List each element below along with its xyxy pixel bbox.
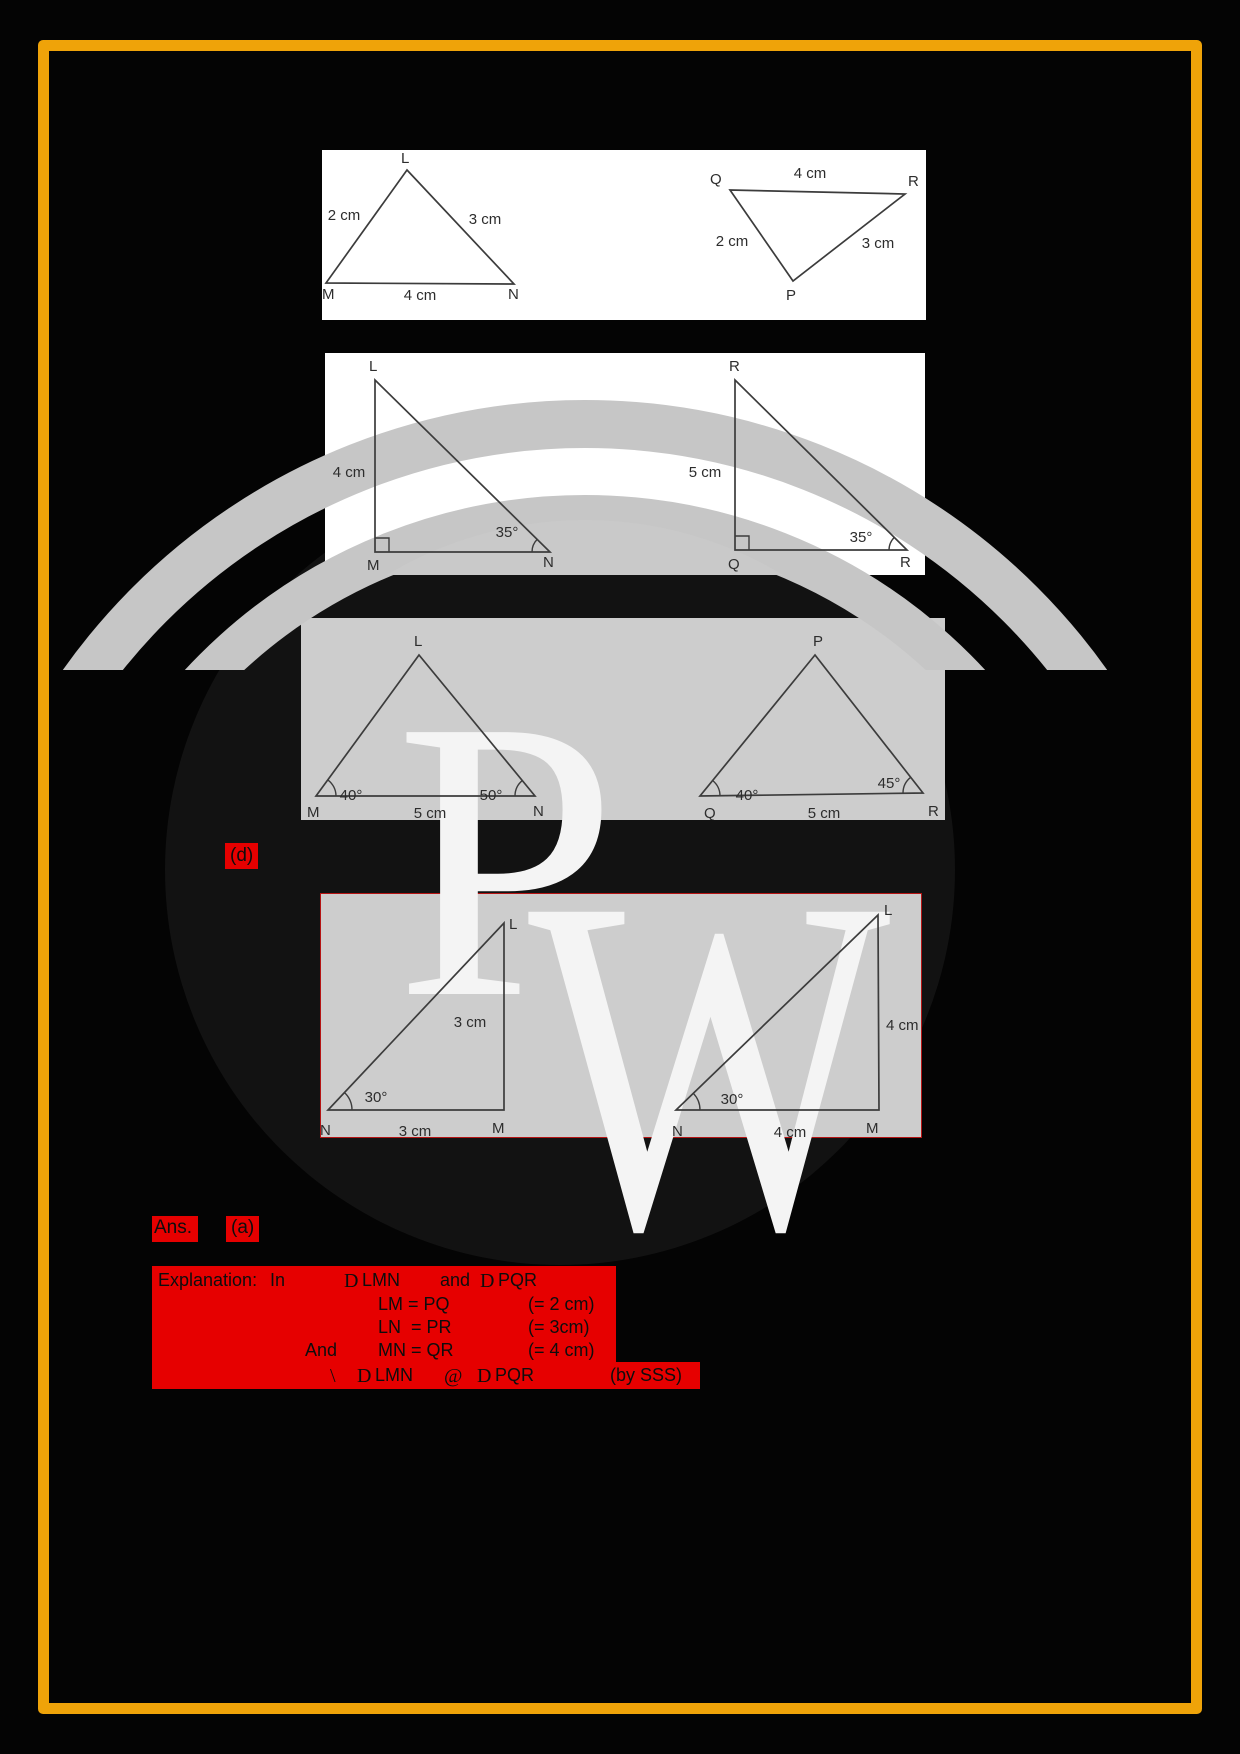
side-label-mn: 4 cm: [404, 287, 437, 304]
side-label-ln: 3 cm: [469, 211, 502, 228]
watermark-disc-cap: [325, 520, 925, 575]
and-word: And: [305, 1340, 337, 1361]
side-label-lm2: 4 cm: [886, 1017, 919, 1034]
vertex-label-n: N: [508, 286, 519, 303]
value-3cm: (= 3cm): [528, 1317, 590, 1338]
delta-symbol: D: [344, 1270, 358, 1293]
triangle-pqr-name: PQR: [498, 1270, 537, 1291]
vertex-label-r-top: R: [729, 358, 740, 375]
angle-label-m: 40°: [340, 787, 363, 804]
vertex-label-m: M: [367, 557, 380, 574]
by-sss-note: (by SSS): [610, 1365, 682, 1386]
equation-ln-pr: LN = PR: [378, 1317, 452, 1338]
vertex-label-r: R: [928, 803, 939, 820]
side-label-nm2: 4 cm: [774, 1124, 807, 1138]
answer-value: (a): [226, 1216, 259, 1242]
angle-label-n1: 30°: [365, 1089, 388, 1106]
vertex-label-m: M: [307, 804, 320, 820]
explanation-block: Explanation: In D LMN and D PQR LM = PQ …: [152, 1266, 616, 1362]
side-label-rq: 5 cm: [689, 464, 722, 481]
value-2cm: (= 2 cm): [528, 1294, 595, 1315]
vertex-label-l: L: [414, 633, 422, 650]
vertex-label-m2: M: [866, 1120, 879, 1137]
angle-arc-n2: [693, 1093, 700, 1110]
triangle-lmn-asa: [316, 655, 535, 796]
vertex-label-n: N: [543, 554, 554, 571]
side-label-lm: 2 cm: [328, 207, 361, 224]
watermark-circle: [165, 475, 955, 1265]
side-label-lm1: 3 cm: [454, 1014, 487, 1031]
vertex-label-r: R: [908, 173, 919, 190]
figure-asa-drawing: L 40° 50° M 5 cm N P 40° 45° Q 5 cm R: [301, 618, 945, 820]
vertex-label-r: R: [900, 554, 911, 571]
angle-label-q: 40°: [736, 787, 759, 804]
triangle-lmn-name: LMN: [362, 1270, 400, 1291]
angle-label-n2: 30°: [721, 1091, 744, 1108]
vertex-label-p: P: [813, 633, 823, 650]
vertex-label-m1: M: [492, 1120, 505, 1137]
angle-arc-m: [328, 780, 336, 796]
figure-option-d-drawing: L 3 cm 30° N 3 cm M L 4 cm 30° N 4 cm M: [320, 893, 922, 1138]
angle-arc-q: [713, 781, 720, 797]
answer-label: Ans.: [152, 1216, 198, 1242]
vertex-label-l: L: [401, 150, 409, 167]
equation-lm-pq: LM = PQ: [378, 1294, 450, 1315]
explanation-line-4: And MN = QR (= 4 cm): [152, 1338, 616, 1362]
triangle-lmn-right: [375, 380, 550, 552]
and-word: and: [440, 1270, 470, 1291]
angle-arc-n1: [344, 1093, 352, 1111]
right-angle-mark-m: [375, 538, 389, 552]
delta-symbol: D: [480, 1270, 494, 1293]
option-d-label: (d): [225, 843, 258, 869]
in-word: In: [270, 1270, 285, 1291]
vertex-label-p: P: [786, 287, 796, 304]
triangle-rqr-right: [735, 380, 907, 550]
side-label-qp: 2 cm: [716, 233, 749, 250]
equation-mn-qr: MN = QR: [378, 1340, 454, 1361]
side-label-nm1: 3 cm: [399, 1123, 432, 1138]
vertex-label-l1: L: [509, 916, 517, 933]
angle-label-r: 45°: [878, 775, 901, 792]
angle-label-r: 35°: [850, 529, 873, 546]
figure-right-triangles-drawing: L 4 cm 35° M N R 5 cm 35° Q R: [325, 353, 925, 575]
figure-sss-drawing: L 2 cm 3 cm M 4 cm N Q 4 cm R 2 cm 3 cm …: [322, 150, 926, 320]
value-4cm: (= 4 cm): [528, 1340, 595, 1361]
side-label-qr: 4 cm: [794, 165, 827, 182]
vertex-label-l: L: [369, 358, 377, 375]
document-page: { "colors":{ "highlight":"#e60000", "fra…: [0, 0, 1240, 1754]
triangle-nml-right: [676, 915, 879, 1110]
side-label-mn: 5 cm: [414, 805, 447, 820]
vertex-label-m: M: [322, 286, 335, 303]
explanation-line-2: LM = PQ (= 2 cm): [152, 1292, 616, 1316]
vertex-label-l2: L: [884, 902, 892, 919]
vertex-label-q: Q: [710, 171, 722, 188]
side-label-lm: 4 cm: [333, 464, 366, 481]
angle-arc-r: [903, 777, 911, 793]
explanation-heading: Explanation:: [158, 1270, 257, 1291]
explanation-line-5: \ D LMN @ D PQR (by SSS): [152, 1362, 700, 1389]
angle-label-n: 35°: [496, 524, 519, 541]
vertex-label-q: Q: [728, 556, 740, 573]
therefore-symbol: \: [330, 1365, 336, 1388]
side-label-pr: 3 cm: [862, 235, 895, 252]
angle-arc-r: [889, 537, 894, 550]
vertex-label-n1: N: [320, 1122, 331, 1138]
angle-arc-n: [515, 781, 522, 796]
congruent-symbol: @: [444, 1365, 462, 1388]
delta-symbol: D: [357, 1365, 371, 1388]
right-angle-mark-q: [735, 536, 749, 550]
angle-label-n: 50°: [480, 787, 503, 804]
explanation-line-1: Explanation: In D LMN and D PQR: [152, 1268, 616, 1292]
explanation-line-3: LN = PR (= 3cm): [152, 1315, 616, 1339]
vertex-label-n: N: [533, 803, 544, 820]
triangle-lmn-name: LMN: [375, 1365, 413, 1386]
delta-symbol: D: [477, 1365, 491, 1388]
answer-row: Ans. (a): [0, 1216, 1240, 1242]
vertex-label-q: Q: [704, 805, 716, 820]
vertex-label-n2: N: [672, 1123, 683, 1138]
triangle-pqr-name: PQR: [495, 1365, 534, 1386]
side-label-qr: 5 cm: [808, 805, 841, 820]
